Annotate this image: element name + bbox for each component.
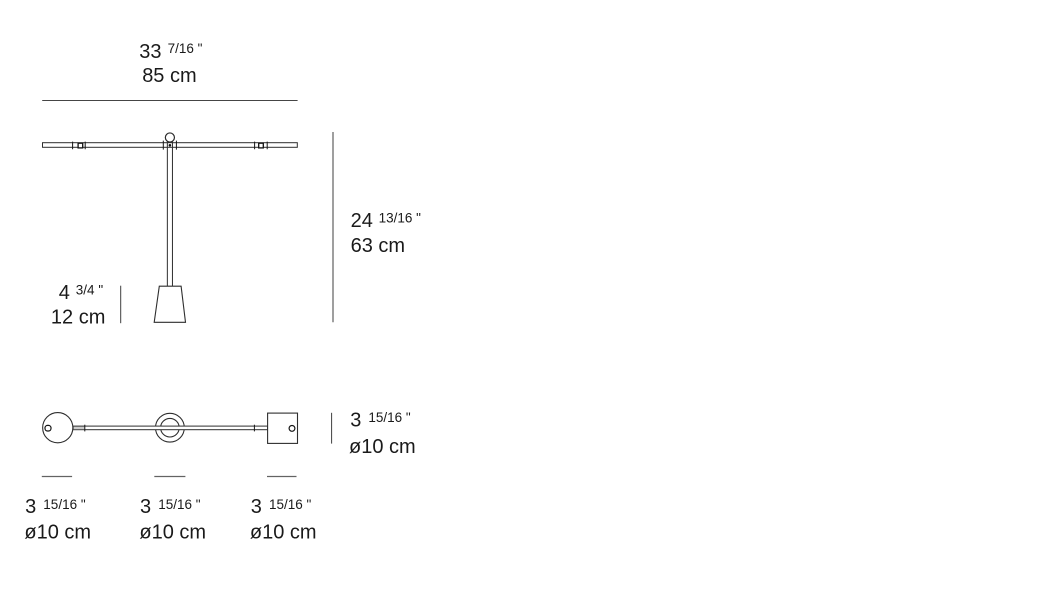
- svg-text:ø10 cm: ø10 cm: [139, 521, 206, 543]
- svg-text:13/16 ": 13/16 ": [379, 210, 422, 225]
- svg-text:15/16 ": 15/16 ": [269, 497, 312, 512]
- svg-text:3: 3: [25, 496, 36, 518]
- svg-text:ø10 cm: ø10 cm: [349, 436, 416, 458]
- svg-text:3: 3: [350, 409, 361, 431]
- svg-text:3: 3: [251, 496, 262, 518]
- svg-text:3: 3: [140, 496, 151, 518]
- svg-text:7/16 ": 7/16 ": [168, 41, 203, 56]
- svg-text:24: 24: [351, 210, 373, 232]
- svg-text:15/16 ": 15/16 ": [368, 410, 411, 425]
- svg-text:3/4 ": 3/4 ": [76, 282, 104, 297]
- svg-text:15/16 ": 15/16 ": [43, 497, 86, 512]
- svg-text:ø10 cm: ø10 cm: [250, 521, 317, 543]
- svg-text:33: 33: [139, 41, 161, 63]
- svg-text:63 cm: 63 cm: [351, 235, 405, 257]
- svg-text:15/16 ": 15/16 ": [158, 497, 201, 512]
- svg-text:85 cm: 85 cm: [142, 65, 196, 87]
- svg-text:4: 4: [59, 282, 70, 304]
- svg-text:12 cm: 12 cm: [51, 306, 105, 328]
- svg-text:ø10 cm: ø10 cm: [24, 521, 91, 543]
